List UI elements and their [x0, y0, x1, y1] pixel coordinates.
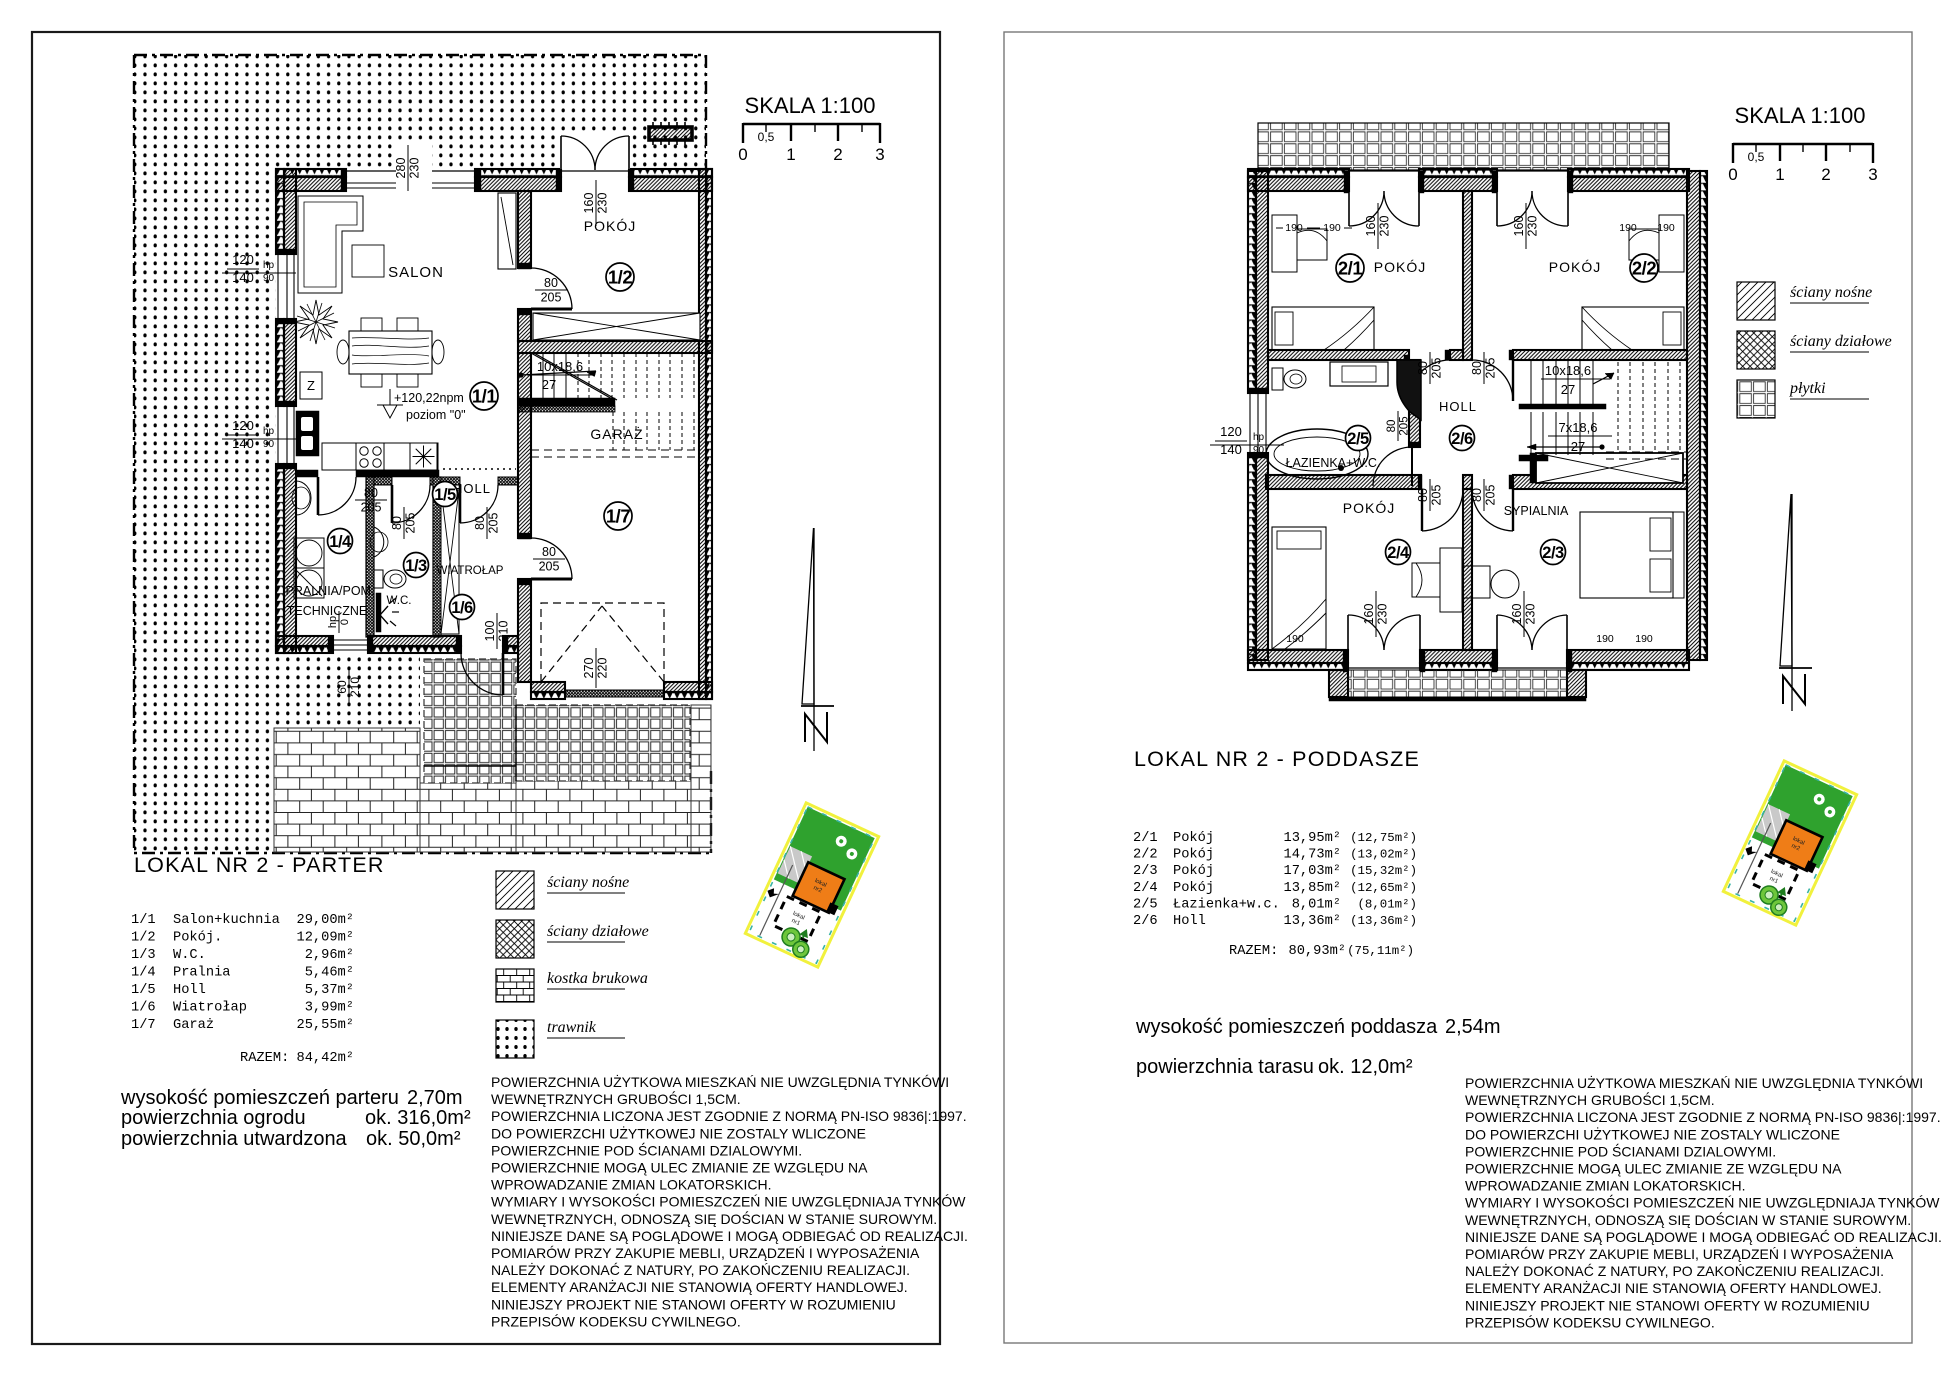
svg-text:POWIERZCHNIA UŻYTKOWA MIESZKAŃ: POWIERZCHNIA UŻYTKOWA MIESZKAŃ NIE UWZGL… [1465, 1074, 1923, 1091]
svg-text:POWIERZCHNIE MOGĄ ULEC ZMIANIE: POWIERZCHNIE MOGĄ ULEC ZMIANIE ZE WZGLĘD… [1465, 1161, 1842, 1177]
svg-text:GARAŻ: GARAŻ [590, 425, 643, 442]
svg-text:SKALA 1:100: SKALA 1:100 [745, 93, 876, 118]
svg-text:poziom "0": poziom "0" [406, 408, 466, 422]
svg-text:POMIARÓW PRZY ZAKUPIE MEBLI, U: POMIARÓW PRZY ZAKUPIE MEBLI, URZĄDZEŃ I … [491, 1244, 920, 1261]
svg-text:NALEŻY DOKONAĆ Z NATURY, PO ZA: NALEŻY DOKONAĆ Z NATURY, PO ZAKOŃCZENIU … [491, 1261, 910, 1278]
svg-text:Pokój: Pokój [1173, 881, 1214, 896]
svg-text:1: 1 [1775, 165, 1784, 184]
svg-text:powierzchnia tarasu: powierzchnia tarasu [1136, 1056, 1314, 1078]
svg-text:100: 100 [483, 621, 497, 642]
svg-text:2/4: 2/4 [1133, 881, 1158, 896]
svg-text:3: 3 [875, 145, 884, 164]
svg-text:2/6: 2/6 [1451, 430, 1473, 448]
svg-text:205: 205 [1430, 358, 1444, 379]
svg-text:1/7: 1/7 [131, 1018, 156, 1033]
svg-text:2/5: 2/5 [1347, 430, 1369, 448]
svg-text:ściany nośne: ściany nośne [547, 874, 629, 891]
svg-text:230: 230 [1376, 604, 1390, 625]
svg-text:205: 205 [539, 560, 560, 574]
svg-text:140: 140 [232, 436, 254, 451]
svg-text:27: 27 [1561, 382, 1575, 397]
svg-text:PRZEPISÓW KODEKSU CYWILNEGO.: PRZEPISÓW KODEKSU CYWILNEGO. [491, 1313, 741, 1329]
svg-text:DO POWIERZCHI UŻYTKOWEJ NIE ZO: DO POWIERZCHI UŻYTKOWEJ NIE ZOSTALY WLIC… [491, 1124, 866, 1141]
svg-text:hp: hp [1253, 432, 1265, 443]
svg-text:3,99m²: 3,99m² [305, 1001, 354, 1016]
svg-text:płytki: płytki [1789, 380, 1826, 397]
svg-text:1/4: 1/4 [131, 966, 156, 981]
svg-text:WEWNĘTRZNYCH, ODNOSZĄ SIĘ DOŚC: WEWNĘTRZNYCH, ODNOSZĄ SIĘ DOŚCIAN W STAN… [1465, 1211, 1911, 1228]
svg-text:POWIERZCHNIE POD ŚCIANAMI DZIA: POWIERZCHNIE POD ŚCIANAMI DZIALOWYMI. [1465, 1142, 1776, 1159]
svg-text:205: 205 [1484, 485, 1498, 506]
svg-text:160: 160 [1510, 604, 1524, 625]
svg-text:160: 160 [1362, 604, 1376, 625]
svg-text:80: 80 [1416, 361, 1430, 375]
svg-text:280: 280 [394, 158, 408, 179]
svg-text:205: 205 [361, 501, 382, 515]
svg-text:LOKAL NR 2 - PODDASZE: LOKAL NR 2 - PODDASZE [1134, 747, 1420, 771]
svg-text:PRALNIA/POM.: PRALNIA/POM. [286, 584, 375, 598]
svg-text:1/3: 1/3 [405, 557, 427, 575]
svg-text:12,09m²: 12,09m² [297, 931, 355, 946]
svg-text:2/1: 2/1 [1133, 831, 1158, 846]
svg-text:5,46m²: 5,46m² [305, 966, 354, 981]
svg-text:80: 80 [544, 276, 558, 290]
svg-text:1/3: 1/3 [131, 948, 156, 963]
svg-text:205: 205 [404, 513, 418, 534]
svg-text:80: 80 [542, 545, 556, 559]
svg-text:NINIEJSZE DANE SĄ POGLĄDOWE I: NINIEJSZE DANE SĄ POGLĄDOWE I MOGĄ ODBIE… [1465, 1229, 1942, 1245]
svg-text:hp: hp [327, 616, 339, 628]
svg-text:2,70m: 2,70m [407, 1087, 463, 1109]
svg-text:RAZEM:: RAZEM: [1229, 944, 1278, 959]
svg-text:160: 160 [582, 193, 596, 214]
svg-text:190: 190 [1285, 222, 1303, 234]
svg-text:Pokój: Pokój [1173, 848, 1214, 863]
svg-text:WPROWADZANIE ZMIAN LOKATORSKIC: WPROWADZANIE ZMIAN LOKATORSKICH. [491, 1177, 772, 1193]
svg-text:2: 2 [1821, 165, 1830, 184]
svg-text:2,96m²: 2,96m² [305, 948, 354, 963]
svg-text:120: 120 [1220, 424, 1242, 439]
svg-text:230: 230 [596, 193, 610, 214]
svg-text:2/2: 2/2 [1133, 848, 1158, 863]
svg-text:POWIERZCHNIA LICZONA JEST ZGOD: POWIERZCHNIA LICZONA JEST ZGODNIE Z NORM… [1465, 1109, 1941, 1125]
svg-text:ELEMENTY ARANŻACJI NIE STANOWI: ELEMENTY ARANŻACJI NIE STANOWIĄ OFERTY H… [1465, 1279, 1882, 1296]
svg-text:(8,01m²): (8,01m²) [1358, 897, 1418, 911]
svg-text:80,93m²: 80,93m² [1289, 944, 1347, 959]
svg-text:2/1: 2/1 [1338, 258, 1362, 279]
svg-text:60: 60 [335, 680, 349, 694]
svg-text:WYMIARY I WYSOKOŚCI POMIESZCZE: WYMIARY I WYSOKOŚCI POMIESZCZEŃ NIE UWZG… [491, 1193, 966, 1210]
svg-text:ściany działowe: ściany działowe [547, 923, 649, 940]
svg-text:0: 0 [738, 145, 747, 164]
svg-text:WEWNĘTRZNYCH GRUBOŚCI 1,5CM.: WEWNĘTRZNYCH GRUBOŚCI 1,5CM. [1465, 1091, 1715, 1108]
svg-text:ok. 316,0m²: ok. 316,0m² [365, 1107, 471, 1129]
svg-text:RAZEM:: RAZEM: [240, 1051, 289, 1066]
svg-text:1/4: 1/4 [329, 533, 352, 551]
svg-text:NINIEJSZY PROJEKT NIE STANOWI: NINIEJSZY PROJEKT NIE STANOWI OFERTY W R… [491, 1296, 896, 1312]
svg-text:205: 205 [1484, 358, 1498, 379]
svg-text:1/7: 1/7 [606, 506, 630, 527]
svg-text:270: 270 [582, 658, 596, 679]
svg-text:PRZEPISÓW KODEKSU CYWILNEGO.: PRZEPISÓW KODEKSU CYWILNEGO. [1465, 1314, 1715, 1330]
svg-text:205: 205 [487, 513, 501, 534]
svg-text:190: 190 [1635, 633, 1653, 645]
svg-text:0,5: 0,5 [758, 130, 775, 144]
svg-text:Holl: Holl [173, 983, 206, 998]
svg-text:230: 230 [1524, 604, 1538, 625]
svg-text:hp: hp [263, 260, 275, 271]
svg-text:205: 205 [1399, 416, 1411, 435]
svg-text:90: 90 [1253, 445, 1265, 456]
svg-text:1/2: 1/2 [131, 931, 156, 946]
svg-text:29,00m²: 29,00m² [297, 913, 355, 928]
svg-text:5,37m²: 5,37m² [305, 983, 354, 998]
svg-text:80: 80 [1416, 488, 1430, 502]
svg-text:LOKAL NR 2 - PARTER: LOKAL NR 2 - PARTER [134, 853, 385, 877]
svg-text:wysokość pomieszczeń parteru: wysokość pomieszczeń parteru [120, 1087, 399, 1109]
svg-text:powierzchnia utwardzona: powierzchnia utwardzona [121, 1128, 348, 1150]
svg-text:WEWNĘTRZNYCH, ODNOSZĄ SIĘ DOŚC: WEWNĘTRZNYCH, ODNOSZĄ SIĘ DOŚCIAN W STAN… [491, 1210, 937, 1227]
svg-text:80: 80 [1386, 420, 1398, 433]
svg-text:2: 2 [833, 145, 842, 164]
svg-text:25,55m²: 25,55m² [297, 1018, 355, 1033]
svg-text:210: 210 [348, 677, 362, 697]
svg-text:80: 80 [390, 516, 404, 530]
svg-text:1: 1 [786, 145, 795, 164]
svg-text:190: 190 [1596, 633, 1614, 645]
svg-text:W.C.: W.C. [387, 595, 412, 607]
svg-text:NINIEJSZY PROJEKT NIE STANOWI: NINIEJSZY PROJEKT NIE STANOWI OFERTY W R… [1465, 1297, 1870, 1313]
svg-text:80: 80 [364, 486, 378, 500]
svg-text:powierzchnia ogrodu: powierzchnia ogrodu [121, 1107, 306, 1129]
svg-text:8,01m²: 8,01m² [1292, 897, 1341, 912]
svg-text:W.C.: W.C. [173, 948, 206, 963]
svg-text:10x18,6: 10x18,6 [1545, 363, 1591, 378]
svg-text:80: 80 [1470, 361, 1484, 375]
svg-text:2/6: 2/6 [1133, 914, 1158, 929]
svg-text:13,85m²: 13,85m² [1284, 881, 1342, 896]
svg-text:90: 90 [263, 439, 275, 450]
svg-text:190: 190 [1619, 222, 1637, 234]
svg-text:POKÓJ: POKÓJ [1549, 259, 1601, 275]
svg-text:190: 190 [1286, 633, 1304, 645]
svg-text:Wiatrołap: Wiatrołap [173, 1001, 247, 1016]
svg-text:3: 3 [1868, 165, 1877, 184]
svg-text:2,54m: 2,54m [1445, 1016, 1501, 1038]
svg-text:(13,36m²): (13,36m²) [1350, 914, 1417, 928]
svg-text:hp: hp [263, 426, 275, 437]
svg-text:NALEŻY DOKONAĆ Z NATURY, PO ZA: NALEŻY DOKONAĆ Z NATURY, PO ZAKOŃCZENIU … [1465, 1262, 1884, 1279]
svg-text:NINIEJSZE DANE SĄ POGLĄDOWE I: NINIEJSZE DANE SĄ POGLĄDOWE I MOGĄ ODBIE… [491, 1228, 968, 1244]
svg-text:SALON: SALON [388, 264, 444, 281]
svg-text:1/5: 1/5 [131, 983, 156, 998]
svg-text:0: 0 [339, 619, 351, 625]
svg-text:ściany działowe: ściany działowe [1790, 333, 1892, 350]
svg-text:POWIERZCHNIA LICZONA JEST ZGOD: POWIERZCHNIA LICZONA JEST ZGODNIE Z NORM… [491, 1108, 967, 1124]
svg-text:140: 140 [1220, 442, 1242, 457]
svg-text:2/3: 2/3 [1133, 864, 1158, 879]
svg-text:ok. 12,0m²: ok. 12,0m² [1318, 1056, 1413, 1078]
svg-text:Garaż: Garaż [173, 1018, 214, 1033]
svg-text:(12,65m²): (12,65m²) [1350, 881, 1417, 895]
svg-text:140: 140 [232, 270, 254, 285]
svg-text:POMIARÓW PRZY ZAKUPIE MEBLI, U: POMIARÓW PRZY ZAKUPIE MEBLI, URZĄDZEŃ I … [1465, 1245, 1894, 1262]
svg-text:POWIERZCHNIA UŻYTKOWA MIESZKAŃ: POWIERZCHNIA UŻYTKOWA MIESZKAŃ NIE UWZGL… [491, 1073, 949, 1090]
svg-text:+120,22npm: +120,22npm [394, 391, 464, 405]
svg-text:(75,11m²): (75,11m²) [1347, 944, 1414, 958]
svg-text:POKÓJ: POKÓJ [1343, 500, 1395, 516]
svg-text:120: 120 [232, 418, 254, 433]
svg-text:80: 80 [1470, 488, 1484, 502]
svg-text:205: 205 [1430, 485, 1444, 506]
svg-text:84,42m²: 84,42m² [297, 1051, 355, 1066]
svg-text:WEWNĘTRZNYCH GRUBOŚCI 1,5CM.: WEWNĘTRZNYCH GRUBOŚCI 1,5CM. [491, 1090, 741, 1107]
svg-text:230: 230 [1526, 216, 1540, 237]
svg-text:Salon+kuchnia: Salon+kuchnia [173, 913, 280, 928]
svg-text:Pokój: Pokój [1173, 831, 1214, 846]
svg-text:SYPIALNIA: SYPIALNIA [1504, 504, 1569, 518]
svg-text:1/1: 1/1 [131, 913, 156, 928]
svg-text:220: 220 [596, 658, 610, 679]
svg-text:80: 80 [473, 516, 487, 530]
svg-text:160: 160 [1364, 216, 1378, 237]
svg-text:POWIERZCHNIE MOGĄ ULEC ZMIANIE: POWIERZCHNIE MOGĄ ULEC ZMIANIE ZE WZGLĘD… [491, 1160, 868, 1176]
svg-text:14,73m²: 14,73m² [1284, 848, 1342, 863]
svg-text:(12,75m²): (12,75m²) [1350, 831, 1417, 845]
svg-text:2/4: 2/4 [1387, 544, 1410, 562]
svg-text:POKÓJ: POKÓJ [584, 218, 636, 234]
svg-text:Holl: Holl [1173, 914, 1206, 929]
svg-text:120: 120 [232, 252, 254, 267]
svg-text:0,5: 0,5 [1748, 150, 1765, 164]
svg-text:13,95m²: 13,95m² [1284, 831, 1342, 846]
svg-text:230: 230 [1378, 216, 1392, 237]
svg-text:17,03m²: 17,03m² [1284, 864, 1342, 879]
svg-text:1/2: 1/2 [608, 267, 632, 288]
svg-text:WYMIARY I WYSOKOŚCI POMIESZCZE: WYMIARY I WYSOKOŚCI POMIESZCZEŃ NIE UWZG… [1465, 1194, 1940, 1211]
svg-text:SKALA 1:100: SKALA 1:100 [1735, 103, 1866, 128]
svg-text:DO POWIERZCHI UŻYTKOWEJ NIE ZO: DO POWIERZCHI UŻYTKOWEJ NIE ZOSTALY WLIC… [1465, 1125, 1840, 1142]
svg-text:Pralnia: Pralnia [173, 966, 231, 981]
svg-text:HOLL: HOLL [453, 481, 491, 496]
svg-text:ELEMENTY ARANŻACJI NIE STANOWI: ELEMENTY ARANŻACJI NIE STANOWIĄ OFERTY H… [491, 1278, 908, 1295]
svg-text:Łazienka+w.c.: Łazienka+w.c. [1173, 897, 1280, 912]
svg-text:205: 205 [541, 291, 562, 305]
svg-text:Z: Z [307, 378, 315, 393]
svg-text:POKÓJ: POKÓJ [1374, 259, 1426, 275]
svg-text:0: 0 [1728, 165, 1737, 184]
svg-text:ok. 50,0m²: ok. 50,0m² [366, 1128, 461, 1150]
svg-text:190: 190 [1657, 222, 1675, 234]
svg-text:wysokość pomieszczeń poddasza: wysokość pomieszczeń poddasza [1135, 1016, 1438, 1038]
svg-text:WPROWADZANIE ZMIAN LOKATORSKIC: WPROWADZANIE ZMIAN LOKATORSKICH. [1465, 1178, 1746, 1194]
svg-text:7x18,6: 7x18,6 [1558, 420, 1597, 435]
svg-text:(13,02m²): (13,02m²) [1350, 848, 1417, 862]
svg-text:13,36m²: 13,36m² [1284, 914, 1342, 929]
svg-text:ściany nośne: ściany nośne [1790, 284, 1872, 301]
svg-text:160: 160 [1512, 216, 1526, 237]
svg-text:HOLL: HOLL [1439, 399, 1477, 414]
svg-text:1/1: 1/1 [472, 386, 496, 407]
svg-text:1/6: 1/6 [451, 599, 473, 617]
svg-text:210: 210 [497, 621, 511, 642]
svg-text:kostka brukowa: kostka brukowa [547, 970, 648, 987]
svg-text:230: 230 [408, 158, 422, 179]
svg-text:POWIERZCHNIE POD ŚCIANAMI DZIA: POWIERZCHNIE POD ŚCIANAMI DZIALOWYMI. [491, 1141, 802, 1158]
svg-text:Pokój.: Pokój. [173, 931, 222, 946]
svg-text:WIATROŁAP: WIATROŁAP [437, 565, 504, 577]
svg-text:Pokój: Pokój [1173, 864, 1214, 879]
svg-text:1/6: 1/6 [131, 1001, 156, 1016]
svg-text:190: 190 [1323, 222, 1341, 234]
svg-text:2/5: 2/5 [1133, 897, 1158, 912]
svg-text:27: 27 [542, 377, 556, 392]
svg-text:2/3: 2/3 [1542, 544, 1564, 562]
svg-text:2/2: 2/2 [1632, 258, 1656, 279]
svg-text:ŁAZIENKA+W.C.: ŁAZIENKA+W.C. [1286, 456, 1381, 470]
svg-text:trawnik: trawnik [547, 1019, 597, 1036]
svg-text:1/5: 1/5 [434, 486, 456, 504]
svg-text:(15,32m²): (15,32m²) [1350, 864, 1417, 878]
svg-text:90: 90 [263, 273, 275, 284]
